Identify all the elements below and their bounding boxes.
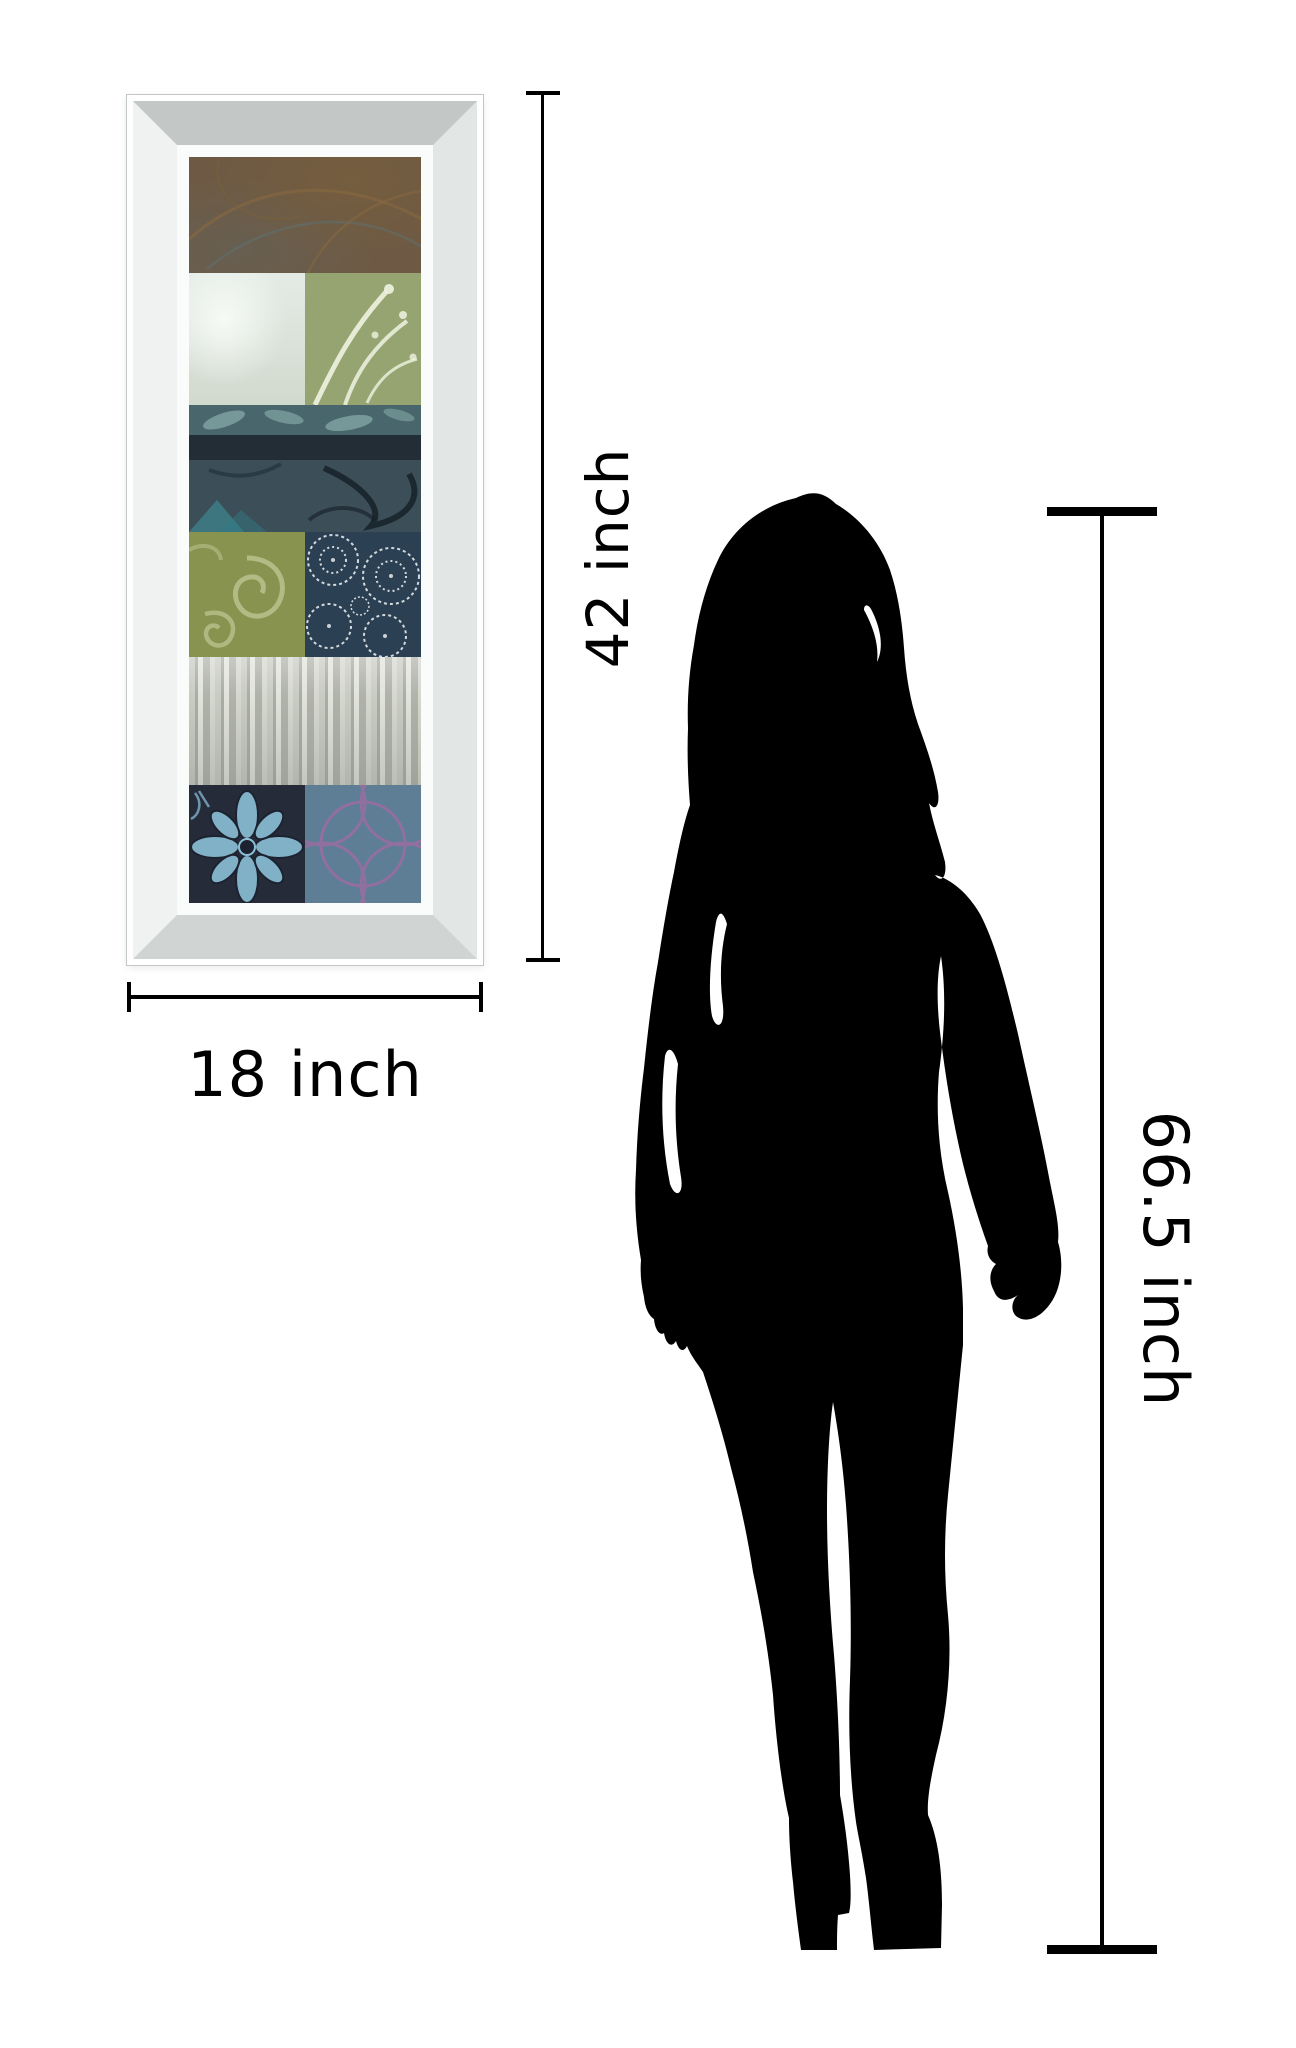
woman-silhouette — [600, 480, 1090, 1970]
artwork-height-dimension-line — [541, 93, 544, 962]
artwork-print — [189, 157, 421, 903]
leaf-strip-decoration — [189, 405, 421, 435]
panel-row-3 — [189, 405, 421, 532]
panel-rust-swirl — [189, 157, 421, 273]
swirl-pattern-decoration — [189, 157, 421, 273]
batik-flower-decoration — [189, 785, 305, 903]
artwork-width-right-tick — [479, 982, 483, 1012]
artwork-height-top-tick — [526, 91, 560, 95]
vine-pattern-decoration — [189, 460, 421, 532]
branch-pattern-decoration — [305, 273, 421, 405]
panel-sage-branches — [305, 273, 421, 405]
artwork-width-left-tick — [127, 982, 131, 1012]
person-height-dimension-line — [1100, 510, 1104, 1952]
artwork-height-bottom-tick — [526, 958, 560, 962]
person-height-label: 66.5 inch — [1132, 1099, 1198, 1419]
panel-row-4 — [189, 532, 421, 657]
panel-navy-lace — [305, 532, 421, 657]
artwork-width-dimension-line — [128, 995, 483, 999]
panel-dark-batik-flower — [189, 785, 305, 903]
panel-silver-birch — [189, 657, 421, 785]
framed-artwork — [127, 95, 483, 965]
panel-teal-leaf-strip — [189, 405, 421, 435]
panel-dark-navy-strip — [189, 435, 421, 460]
woman-silhouette-body — [635, 493, 1061, 1950]
panel-pale-ice — [189, 273, 305, 405]
lace-medallion-decoration — [305, 532, 421, 657]
interlocking-circles-decoration — [305, 785, 421, 903]
panel-row-6 — [189, 785, 421, 903]
panel-row-2 — [189, 273, 421, 405]
size-comparison-diagram: { "diagram": { "type": "product size com… — [0, 0, 1296, 2048]
panel-teal-vine-strip — [189, 460, 421, 532]
panel-olive-spiral — [189, 532, 305, 657]
artwork-width-label: 18 inch — [165, 1040, 445, 1110]
panel-slate-circles — [305, 785, 421, 903]
spiral-pattern-decoration — [189, 532, 305, 657]
